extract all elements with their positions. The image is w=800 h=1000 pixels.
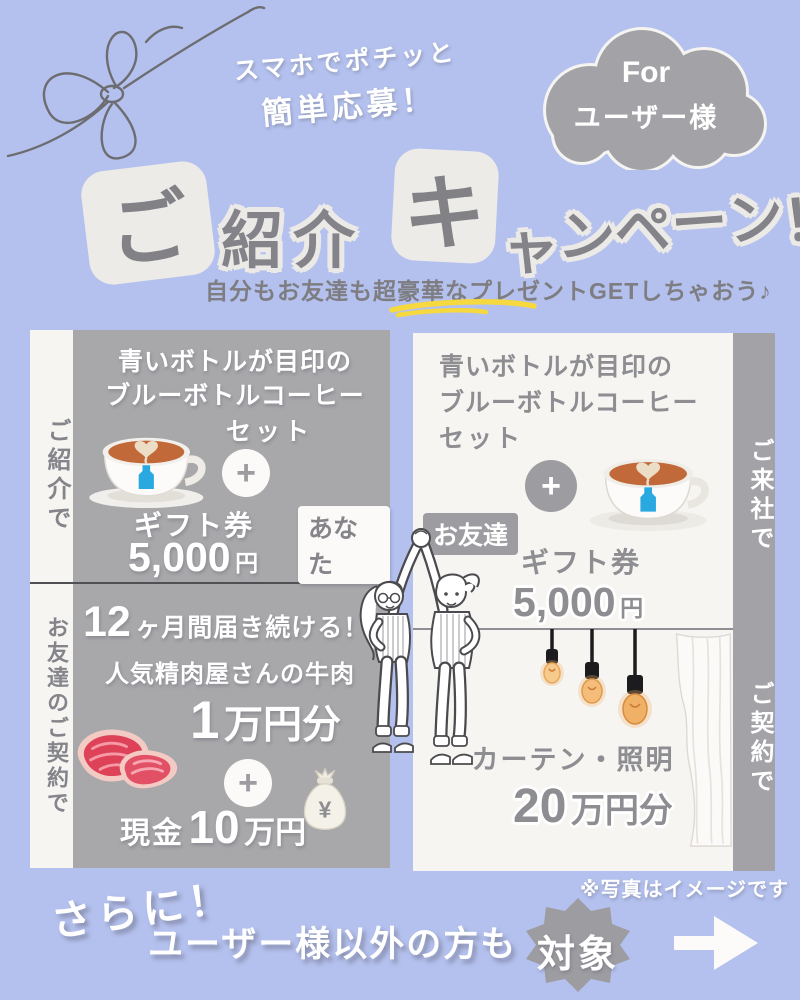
friend-cash-line: 現金 10 万円 [120, 800, 306, 854]
title-part1: 紹介 [221, 190, 365, 280]
cash-label: 現金 [120, 817, 184, 850]
referral-prize-line2: ブルーボトルコーヒー [90, 376, 380, 412]
visit-prize-line2: ブルーボトルコーヒー [439, 383, 699, 419]
visit-gift-amount: 5,000 円 [513, 579, 643, 626]
amount-number: 20 [513, 780, 566, 833]
coffee-cup-icon [575, 433, 733, 533]
friend-prize-line1: 12 ヶ月間届き続ける！ [83, 598, 369, 647]
title-part2: ャンペーン！ [503, 182, 800, 263]
title-part2-char: ン [722, 171, 787, 258]
referral-side-label: ご紹介で [39, 418, 74, 534]
cloud-line1: For [520, 56, 772, 90]
visit-prize-line1: 青いボトルが目印の [439, 347, 673, 383]
amount-unit: 万円分 [224, 704, 341, 747]
cloud-line2: ユーザー様 [520, 96, 772, 135]
plus-icon: + [525, 460, 577, 512]
amount-unit: 円 [235, 550, 258, 576]
title-tile-ki: キ [390, 147, 500, 264]
right-arrow-icon [674, 913, 760, 973]
title-part2-char: ー [668, 176, 730, 261]
target-burst: 対象 [516, 889, 640, 1000]
yen-symbol: ¥ [319, 797, 332, 823]
amount-unit: 万円分 [571, 792, 673, 830]
referral-prize-line3: セット [226, 412, 313, 448]
title-part2-char: ペ [614, 185, 671, 267]
visit-gift-label: ギフト券 [521, 541, 641, 581]
amount-unit: 円 [620, 595, 643, 621]
title-part2-char: ャ [497, 200, 565, 289]
title-char2: キ [401, 144, 489, 267]
plus-icon: + [222, 449, 270, 497]
plus-sign: + [238, 766, 258, 800]
referral-prize-line1: 青いボトルが目印の [90, 342, 380, 378]
target-badge-label: 対象 [516, 923, 640, 978]
visit-prize-line3: セット [439, 419, 523, 455]
coffee-cup-icon [76, 412, 228, 510]
cash-number: 10 [188, 801, 239, 853]
plus-sign: + [236, 456, 256, 490]
contract-prize-amount: 20 万円分 [513, 779, 673, 834]
audience-label: ユーザー様以外の方も [148, 916, 517, 967]
referral-gift-amount: 5,000 円 [128, 534, 258, 581]
amount-number: 5,000 [513, 579, 616, 625]
light-bulbs-icon [513, 629, 673, 739]
visit-side-label: ご来社で [742, 438, 777, 554]
campaign-title: ご 紹介 キ ャンペーン！ [85, 146, 735, 291]
beef-meat-icon [66, 720, 208, 796]
title-char1: ご [101, 161, 195, 286]
yellow-underline-icon [386, 297, 538, 319]
two-people-highfive-illustration [333, 520, 508, 790]
plus-sign: + [541, 469, 561, 503]
title-tile-go: ご [79, 159, 218, 288]
campaign-poster: スマホでポチッと 簡単応募！ For ユーザー様 ご [0, 0, 800, 1000]
months-number: 12 [83, 598, 131, 646]
friend-prize-line2: 人気精肉屋さんの牛肉 [90, 654, 370, 689]
contract-side-label: ご契約で [742, 681, 777, 797]
amount-number: 5,000 [128, 534, 231, 580]
cash-unit: 万円 [244, 815, 306, 850]
title-part2-char: ン [556, 191, 619, 277]
friend-prize-amount: 1 万円分 [190, 690, 341, 751]
